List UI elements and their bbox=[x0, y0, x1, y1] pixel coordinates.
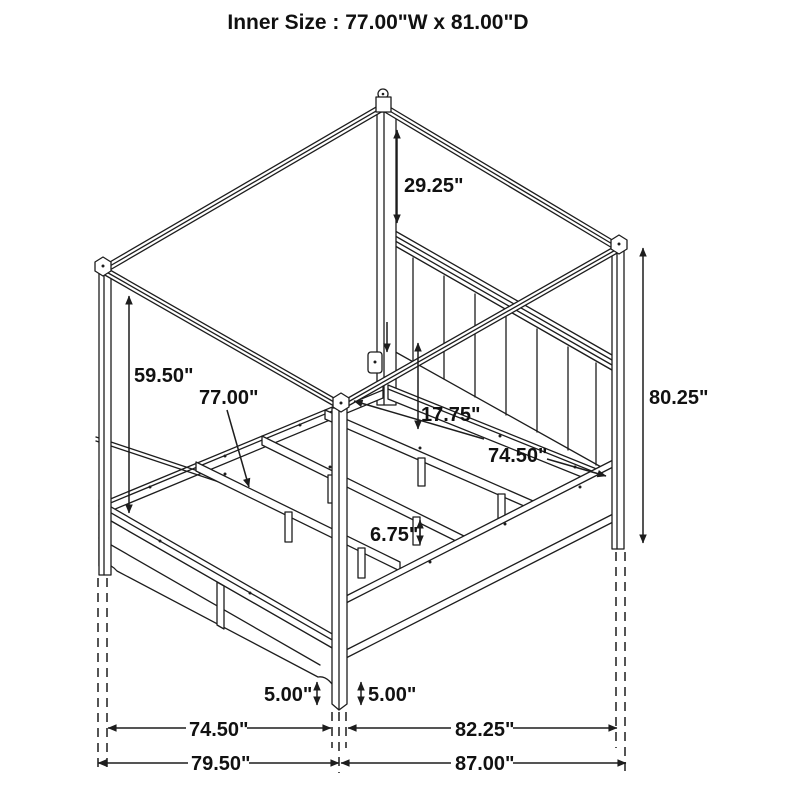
footboard-stile bbox=[217, 582, 224, 629]
inner-size-title: Inner Size : 77.00"W x 81.00"D bbox=[227, 11, 528, 34]
back-post bbox=[368, 112, 396, 405]
canopy-bed-diagram: Inner Size : 77.00"W x 81.00"D bbox=[0, 0, 800, 800]
dim-label-5-00-right: 5.00" bbox=[368, 684, 416, 706]
dim-label-80-25: 80.25" bbox=[649, 387, 709, 409]
dim-footboard-clearance: 5.00" bbox=[264, 682, 317, 706]
dim-label-6-75: 6.75" bbox=[370, 524, 418, 546]
dim-label-77-00: 77.00" bbox=[199, 387, 259, 409]
dim-label-74-50-diag: 74.50" bbox=[488, 445, 548, 467]
dim-overall-height: 80.25" bbox=[643, 248, 709, 543]
canopy-corner-front bbox=[333, 393, 349, 412]
dim-side-depth-overall: 87.00" bbox=[341, 753, 626, 775]
canopy-corner-right bbox=[611, 235, 627, 254]
footboard bbox=[99, 500, 341, 697]
canopy-corner-left bbox=[95, 257, 111, 276]
dim-label-74-50-bottom: 74.50" bbox=[189, 719, 249, 741]
slat-1 bbox=[196, 462, 400, 578]
front-post bbox=[332, 408, 347, 710]
dim-slat-leg-height: 6.75" bbox=[370, 520, 420, 546]
dim-canopy-to-headboard: 29.25" bbox=[397, 130, 464, 223]
dim-front-width-overall: 79.50" bbox=[98, 753, 339, 775]
left-post bbox=[99, 272, 111, 575]
canopy-corner-back bbox=[376, 89, 391, 112]
dim-label-82-25: 82.25" bbox=[455, 719, 515, 741]
dim-front-width-inner: 74.50" bbox=[108, 719, 331, 741]
right-post bbox=[612, 250, 624, 549]
dim-rail-clearance: 5.00" bbox=[361, 682, 416, 706]
dim-side-depth-inner: 82.25" bbox=[348, 719, 617, 741]
slat-2 bbox=[262, 436, 470, 548]
dim-label-79-50: 79.50" bbox=[191, 753, 251, 775]
dim-label-5-00-left: 5.00" bbox=[264, 684, 312, 706]
dim-label-87-00: 87.00" bbox=[455, 753, 515, 775]
dim-label-29-25: 29.25" bbox=[404, 175, 464, 197]
dimension-diagram: Inner Size : 77.00"W x 81.00"D bbox=[0, 0, 800, 800]
dim-label-59-50: 59.50" bbox=[134, 365, 194, 387]
